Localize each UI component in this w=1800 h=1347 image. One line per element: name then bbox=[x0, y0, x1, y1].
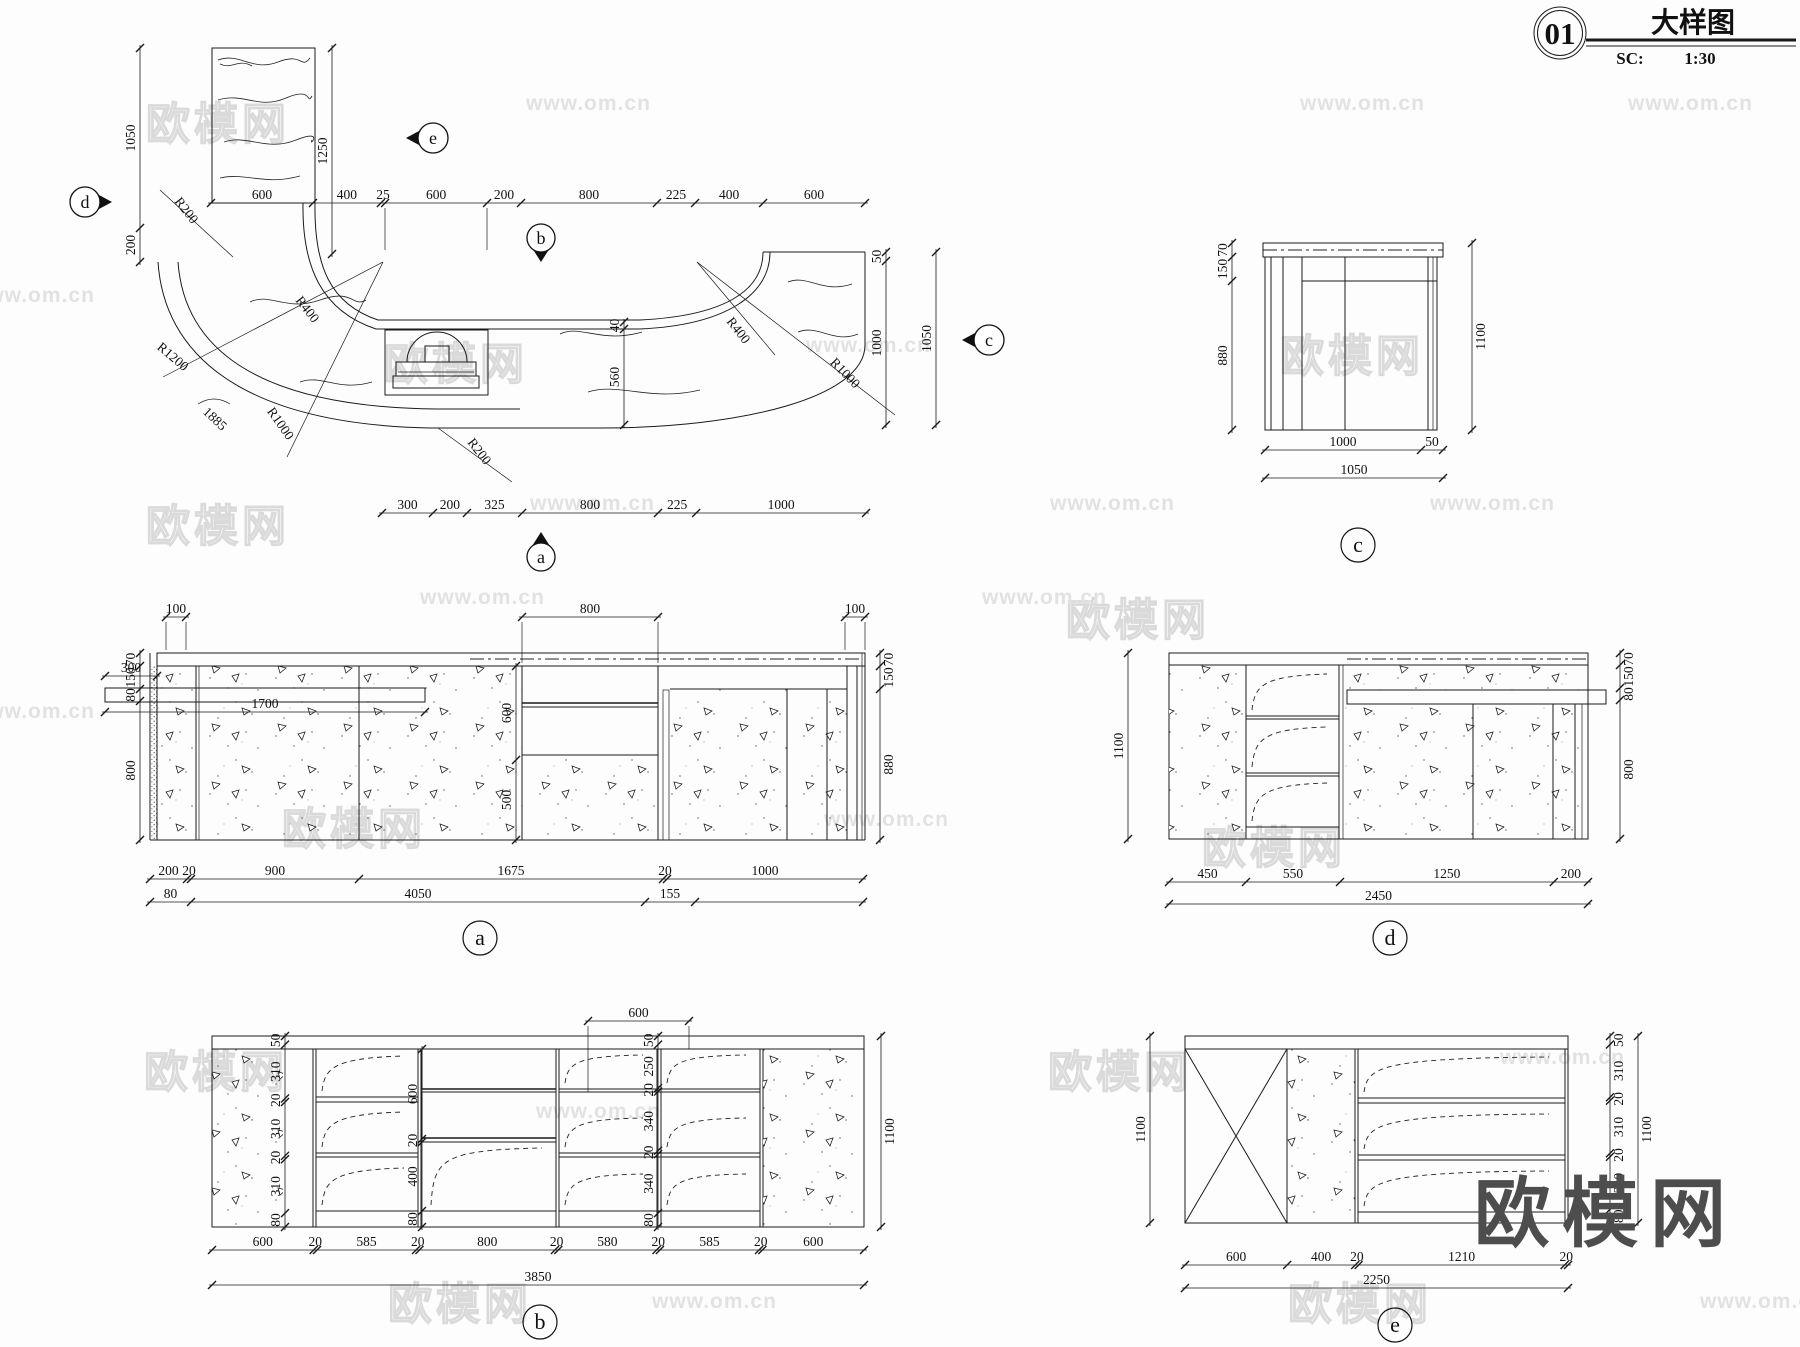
dim-label: 80 bbox=[164, 886, 178, 901]
cad-drawing: 01 大样图 SC: 1:30 bbox=[0, 0, 1800, 1347]
view-marker-e-icon: e bbox=[406, 123, 448, 153]
dim-label: 880 bbox=[1215, 345, 1230, 366]
plan-dim-top: 60040025600200800225400600 bbox=[207, 187, 869, 207]
dim-label: 225 bbox=[666, 187, 687, 202]
e-dim-bottom2: 2250 bbox=[1181, 1272, 1572, 1292]
dim-label: 1250 bbox=[1433, 866, 1460, 881]
dim-label: 585 bbox=[699, 1234, 720, 1249]
a-dim-top-right: 100 bbox=[841, 601, 869, 621]
dim-label: 20 bbox=[405, 1134, 420, 1148]
dim-label: 600 bbox=[405, 1084, 420, 1105]
dim-label: 80 bbox=[1621, 687, 1636, 701]
view-label-c: c bbox=[1341, 528, 1375, 562]
svg-text:e: e bbox=[1390, 1312, 1400, 1337]
dim-label: 20 bbox=[1611, 1092, 1626, 1106]
a-dim-bottom2: 804050155 bbox=[146, 886, 867, 906]
radius-label: R400 bbox=[293, 293, 323, 325]
dim-label: 2250 bbox=[1363, 1272, 1390, 1287]
dim-label: 600 bbox=[499, 703, 514, 724]
dim-label: 50 bbox=[268, 1033, 283, 1047]
a-dim-left: 7015080800 bbox=[123, 649, 144, 844]
dim-label: 400 bbox=[405, 1166, 420, 1187]
dim-label: 200 bbox=[494, 187, 515, 202]
svg-text:c: c bbox=[1353, 532, 1363, 557]
dim-label: 100 bbox=[166, 601, 187, 616]
view-marker-a-icon: a bbox=[527, 532, 555, 571]
svg-text:b: b bbox=[535, 1309, 546, 1334]
dim-label: 310 bbox=[1611, 1117, 1626, 1138]
dim-label: 600 bbox=[252, 187, 273, 202]
dim-label: 200 bbox=[440, 497, 461, 512]
detail-number: 01 bbox=[1545, 16, 1576, 51]
view-label-d: d bbox=[1373, 921, 1407, 955]
dim-label: 1250 bbox=[315, 137, 330, 164]
svg-text:a: a bbox=[475, 925, 485, 950]
dim-label: 800 bbox=[579, 187, 600, 202]
dim-label: 4050 bbox=[405, 886, 432, 901]
e-dim-left: 1100 bbox=[1133, 1032, 1154, 1227]
dim-label: 150 bbox=[881, 667, 896, 688]
dim-label: 450 bbox=[1197, 866, 1218, 881]
a-dim-bottom1: 200209001675201000 bbox=[146, 863, 867, 883]
dim-label: 1100 bbox=[882, 1118, 897, 1145]
d-dim-right: 7015080800 bbox=[1616, 649, 1636, 843]
dim-label: 20 bbox=[754, 1234, 768, 1249]
b-dim-mid: 6002040080 bbox=[405, 1045, 426, 1231]
dim-label: 310 bbox=[268, 1176, 283, 1197]
dim-label: 580 bbox=[597, 1234, 618, 1249]
elevation-b: 600 50310203102031080 6002040080 5025020… bbox=[208, 1005, 897, 1339]
dim-label: 800 bbox=[580, 497, 601, 512]
dim-label: 200 bbox=[123, 235, 138, 256]
dim-label: 880 bbox=[881, 754, 896, 775]
watermark-brand-large: 欧模网 bbox=[1474, 1152, 1738, 1262]
dim-label: 400 bbox=[719, 187, 740, 202]
dim-label: 1100 bbox=[1639, 1116, 1654, 1143]
plan-dim-right-total: 1050 bbox=[919, 248, 940, 429]
dim-label: 50 bbox=[641, 1033, 656, 1047]
dim-label: 70 bbox=[881, 653, 896, 667]
dim-label: 20 bbox=[268, 1151, 283, 1165]
dim-label: 1000 bbox=[752, 863, 779, 878]
svg-text:d: d bbox=[1385, 925, 1396, 950]
counter-equipment-detail bbox=[385, 330, 488, 395]
dim-label: 1000 bbox=[1330, 434, 1357, 449]
dim-label: 800 bbox=[123, 760, 138, 781]
b-dim-right: 1100 bbox=[877, 1032, 897, 1231]
plan-dim-left: 1050200 bbox=[123, 44, 144, 266]
dim-label: 1000 bbox=[768, 497, 795, 512]
dim-label: 50 bbox=[1611, 1033, 1626, 1047]
b-dim-top: 600 bbox=[584, 1005, 693, 1025]
dim-label: 1700 bbox=[252, 696, 279, 711]
radius-label: R1200 bbox=[154, 339, 191, 374]
svg-text:e: e bbox=[429, 128, 437, 148]
dim-label: 1100 bbox=[1473, 323, 1488, 350]
dim-label: 150 bbox=[1621, 666, 1636, 687]
dim-label: 200 bbox=[158, 863, 179, 878]
section-c-dim-bottom1: 100050 bbox=[1261, 434, 1447, 454]
plan-dim-bottom: 3002003258002251000 bbox=[378, 497, 870, 517]
dim-label: 1100 bbox=[1111, 733, 1126, 760]
b-dim-right-inner: 50250203402034080 bbox=[641, 1032, 662, 1231]
dim-label: 20 bbox=[641, 1145, 656, 1159]
dim-label: 1210 bbox=[1448, 1249, 1475, 1264]
dim-label: 600 bbox=[426, 187, 447, 202]
dim-label: 100 bbox=[845, 601, 866, 616]
svg-text:c: c bbox=[985, 330, 993, 350]
dim-label: 400 bbox=[1311, 1249, 1332, 1264]
dim-label: 560 bbox=[607, 367, 622, 388]
dim-label: 50 bbox=[1425, 434, 1439, 449]
view-label-e: e bbox=[1378, 1308, 1412, 1342]
dim-label: 80 bbox=[268, 1213, 283, 1227]
radius-label: R1000 bbox=[264, 404, 297, 442]
b-dim-bottom2: 3850 bbox=[208, 1269, 868, 1289]
plan-dim-depth: 40560 bbox=[607, 318, 628, 429]
dim-label: 20 bbox=[658, 863, 672, 878]
svg-text:a: a bbox=[537, 547, 545, 567]
scale-label: SC: bbox=[1616, 49, 1643, 68]
elevation-d: 1100 7015080800 4505501250200 2450 d bbox=[1111, 649, 1636, 955]
view-label-b: b bbox=[523, 1305, 557, 1339]
view-marker-c-icon: c bbox=[962, 325, 1004, 355]
dim-label: 70 bbox=[1215, 243, 1230, 257]
dim-label: 300 bbox=[397, 497, 418, 512]
dim-label: 155 bbox=[660, 886, 681, 901]
dim-label: 1050 bbox=[123, 124, 138, 151]
dim-label: 20 bbox=[268, 1093, 283, 1107]
dim-label: 50 bbox=[869, 250, 884, 264]
dim-label: 300 bbox=[121, 660, 142, 675]
dim-label: 25 bbox=[376, 187, 390, 202]
svg-text:b: b bbox=[537, 228, 546, 248]
dim-label: 310 bbox=[1611, 1060, 1626, 1081]
dim-label: 80 bbox=[641, 1213, 656, 1227]
dim-label: 20 bbox=[641, 1083, 656, 1097]
dim-label: 325 bbox=[484, 497, 505, 512]
plan-view: R200 R1200 R400 R1000 1885 R200 R400 R10… bbox=[70, 44, 1004, 571]
title-block: 01 大样图 SC: 1:30 bbox=[1534, 6, 1796, 68]
dim-label: 20 bbox=[1350, 1249, 1364, 1264]
dim-label: 20 bbox=[309, 1234, 323, 1249]
dim-label: 585 bbox=[356, 1234, 377, 1249]
a-dim-top-mid: 800 bbox=[518, 601, 662, 621]
svg-text:d: d bbox=[81, 192, 90, 212]
d-dim-bottom1: 4505501250200 bbox=[1165, 866, 1592, 886]
dim-label: 800 bbox=[580, 601, 601, 616]
dim-label: 20 bbox=[411, 1234, 425, 1249]
dim-label: 20 bbox=[182, 863, 196, 878]
detail-title: 大样图 bbox=[1651, 6, 1735, 39]
dim-label: 800 bbox=[477, 1234, 498, 1249]
dim-label: 1100 bbox=[1133, 1116, 1148, 1143]
drawing-sheet: 欧模网 欧模网 欧模网 欧模网 欧模网 欧模网 欧模网 欧模网 欧模网 欧模网 … bbox=[0, 0, 1800, 1347]
dim-label: 20 bbox=[651, 1234, 665, 1249]
view-marker-d-icon: d bbox=[70, 187, 112, 217]
radius-label: R200 bbox=[172, 194, 202, 226]
dim-label: 600 bbox=[253, 1234, 274, 1249]
section-c-dim-right: 1100 bbox=[1468, 239, 1488, 434]
dim-label: 80 bbox=[123, 688, 138, 702]
dim-label: 225 bbox=[667, 497, 688, 512]
dim-label: 310 bbox=[268, 1061, 283, 1082]
plan-dim-right: 501000 bbox=[869, 248, 890, 429]
dim-label: 3850 bbox=[525, 1269, 552, 1284]
dim-label: 250 bbox=[641, 1056, 656, 1077]
dim-label: 200 bbox=[1561, 866, 1582, 881]
plan-dim-column: 1250 bbox=[315, 44, 336, 258]
arc-length-label: 1885 bbox=[200, 404, 230, 434]
scale-value: 1:30 bbox=[1684, 49, 1715, 68]
radius-label: R400 bbox=[724, 314, 754, 346]
view-label-a: a bbox=[463, 921, 497, 955]
section-c-dim-left: 70150880 bbox=[1215, 239, 1236, 434]
dim-label: 80 bbox=[405, 1212, 420, 1226]
dim-label: 1050 bbox=[1341, 462, 1368, 477]
dim-label: 150 bbox=[1215, 259, 1230, 280]
dim-label: 340 bbox=[641, 1111, 656, 1132]
radius-label: R200 bbox=[465, 435, 495, 467]
b-dim-bottom1: 6002058520800205802058520600 bbox=[208, 1234, 868, 1254]
d-dim-bottom2: 2450 bbox=[1165, 888, 1592, 908]
dim-label: 500 bbox=[499, 790, 514, 811]
dim-label: 40 bbox=[607, 319, 622, 333]
dim-label: 600 bbox=[803, 1234, 824, 1249]
dim-label: 600 bbox=[804, 187, 825, 202]
view-marker-b-icon: b bbox=[527, 224, 555, 262]
section-c-dim-bottom2: 1050 bbox=[1261, 462, 1447, 482]
dim-label: 340 bbox=[641, 1173, 656, 1194]
elevation-a: 100 800 100 7015080800 300 1700 600500 7… bbox=[101, 601, 896, 955]
a-dim-right: 70150880 bbox=[876, 649, 896, 844]
dim-label: 600 bbox=[1226, 1249, 1247, 1264]
section-c: 70150880 1100 100050 1050 c bbox=[1215, 239, 1488, 562]
dim-label: 900 bbox=[265, 863, 286, 878]
dim-label: 600 bbox=[628, 1005, 649, 1020]
dim-label: 1050 bbox=[919, 325, 934, 352]
dim-label: 800 bbox=[1621, 759, 1636, 780]
dim-label: 550 bbox=[1283, 866, 1304, 881]
dim-label: 20 bbox=[550, 1234, 564, 1249]
dim-label: 310 bbox=[268, 1119, 283, 1140]
dim-label: 70 bbox=[1621, 652, 1636, 666]
dim-label: 1000 bbox=[869, 329, 884, 356]
dim-label: 1675 bbox=[498, 863, 525, 878]
a-dim-top-left: 100 bbox=[162, 601, 190, 621]
radius-label: R1000 bbox=[827, 355, 863, 391]
dim-label: 2450 bbox=[1365, 888, 1392, 903]
dim-label: 400 bbox=[337, 187, 358, 202]
d-dim-left: 1100 bbox=[1111, 649, 1132, 843]
